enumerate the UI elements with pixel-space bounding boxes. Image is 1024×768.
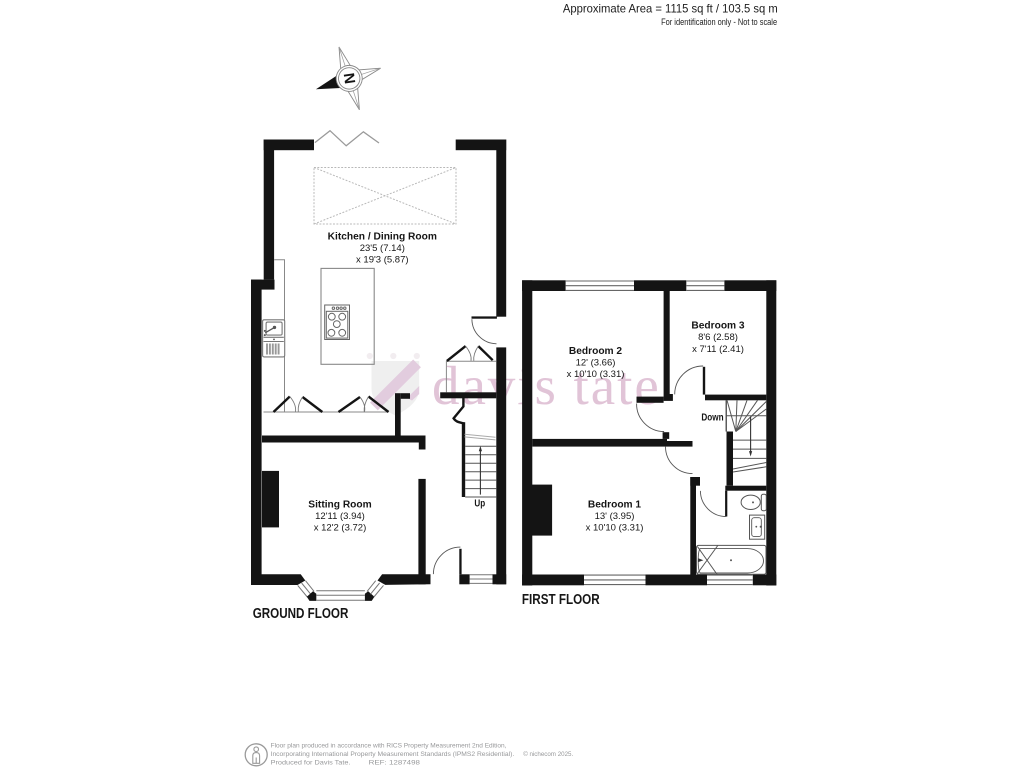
svg-text:Up: Up xyxy=(474,498,485,509)
svg-text:Bedroom 3: Bedroom 3 xyxy=(691,321,745,332)
svg-text:Produced for Davis Tate.: Produced for Davis Tate. xyxy=(271,759,351,766)
svg-text:x 10'10 (3.31): x 10'10 (3.31) xyxy=(567,369,625,380)
svg-text:davis tate: davis tate xyxy=(432,355,661,416)
svg-text:Incorporating International Pr: Incorporating International Property Mea… xyxy=(271,751,515,758)
svg-text:For identification only - Not: For identification only - Not to scale xyxy=(661,17,777,27)
svg-text:Down: Down xyxy=(701,412,723,423)
svg-text:REF: 1287498: REF: 1287498 xyxy=(369,759,421,766)
svg-text:Kitchen / Dining Room: Kitchen / Dining Room xyxy=(328,232,437,243)
svg-text:12' (3.66): 12' (3.66) xyxy=(576,358,616,369)
svg-text:Bedroom 2: Bedroom 2 xyxy=(569,346,623,357)
svg-text:x 19'3 (5.87): x 19'3 (5.87) xyxy=(356,254,409,265)
svg-text:x 7'11 (2.41): x 7'11 (2.41) xyxy=(692,344,744,355)
svg-text:Sitting Room: Sitting Room xyxy=(308,499,371,510)
svg-text:13' (3.95): 13' (3.95) xyxy=(595,511,635,522)
svg-text:x 10'10 (3.31): x 10'10 (3.31) xyxy=(586,522,644,533)
svg-text:FIRST FLOOR: FIRST FLOOR xyxy=(522,592,600,608)
svg-text:8'6 (2.58): 8'6 (2.58) xyxy=(698,332,738,343)
svg-text:Approximate Area = 1115 sq ft: Approximate Area = 1115 sq ft / 103.5 sq… xyxy=(563,2,778,16)
svg-text:23'5 (7.14): 23'5 (7.14) xyxy=(360,243,405,254)
svg-text:Floor plan produced in accorda: Floor plan produced in accordance with R… xyxy=(271,743,507,750)
svg-text:GROUND FLOOR: GROUND FLOOR xyxy=(253,606,349,622)
svg-text:x 12'2 (3.72): x 12'2 (3.72) xyxy=(314,522,367,533)
svg-text:© nichecom 2025.: © nichecom 2025. xyxy=(523,750,573,758)
svg-text:Bedroom 1: Bedroom 1 xyxy=(588,499,642,510)
svg-text:12'11 (3.94): 12'11 (3.94) xyxy=(315,511,365,522)
